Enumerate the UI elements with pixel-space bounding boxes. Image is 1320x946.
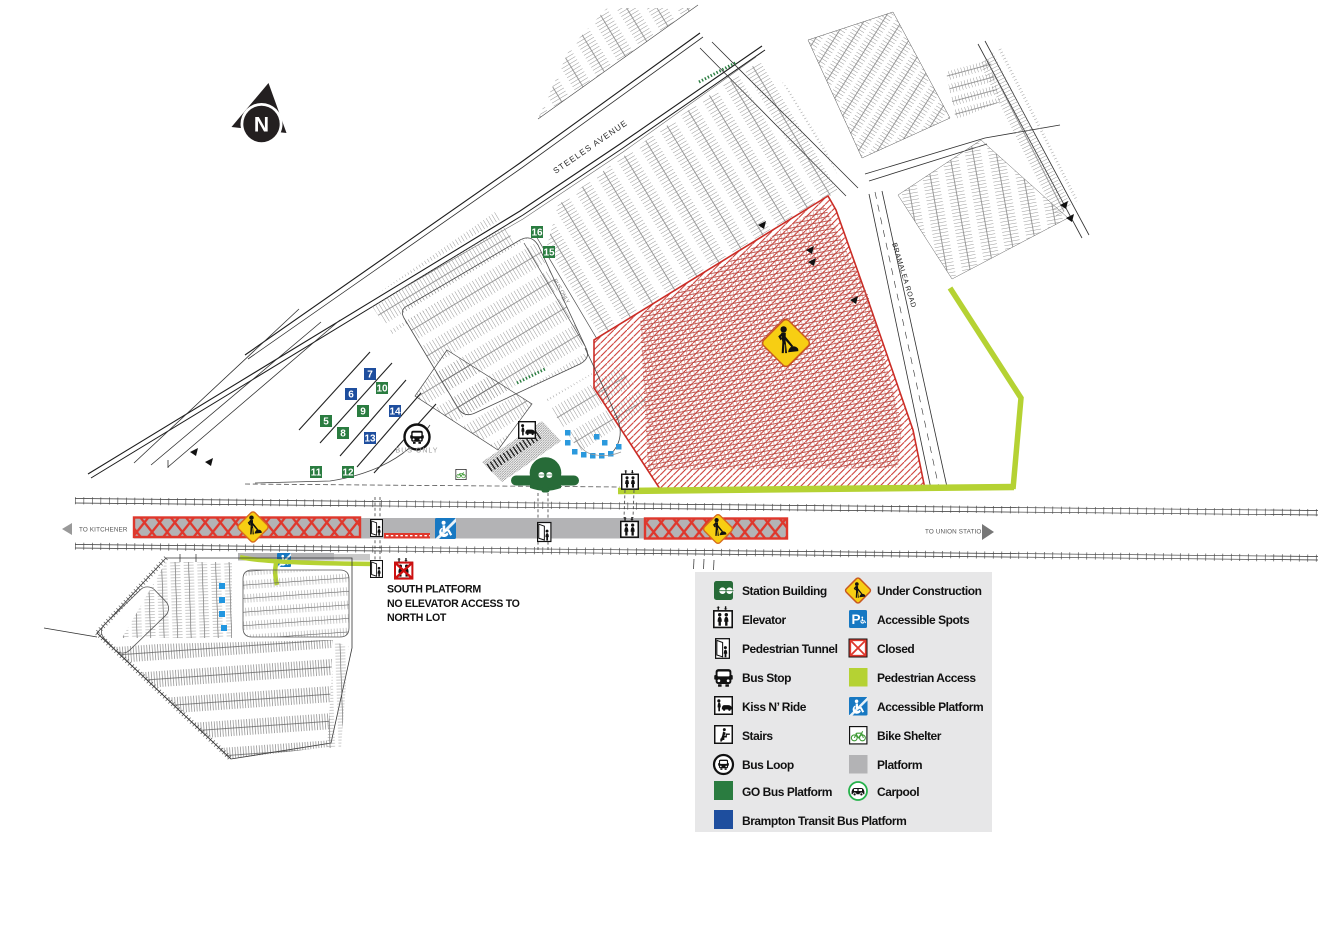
- svg-text:7: 7: [367, 370, 373, 381]
- svg-text:Closed: Closed: [877, 642, 914, 656]
- svg-text:SOUTH PLATFORM: SOUTH PLATFORM: [387, 584, 481, 596]
- svg-text:13: 13: [364, 434, 376, 445]
- svg-text:Pedestrian Tunnel: Pedestrian Tunnel: [742, 642, 838, 656]
- svg-text:15: 15: [543, 248, 555, 259]
- svg-text:TO KITCHENER: TO KITCHENER: [79, 527, 128, 534]
- svg-text:Carpool: Carpool: [877, 785, 919, 799]
- svg-text:9: 9: [360, 407, 366, 418]
- svg-text:NO ELEVATOR ACCESS TO: NO ELEVATOR ACCESS TO: [387, 598, 520, 610]
- svg-text:14: 14: [389, 407, 401, 418]
- svg-text:10: 10: [376, 384, 388, 395]
- svg-text:Bus Loop: Bus Loop: [742, 758, 794, 772]
- svg-text:GO Bus Platform: GO Bus Platform: [742, 785, 832, 799]
- svg-text:Bus Stop: Bus Stop: [742, 671, 791, 685]
- svg-text:Accessible Spots: Accessible Spots: [877, 613, 970, 627]
- svg-text:BUS ONLY: BUS ONLY: [396, 448, 439, 455]
- svg-text:Pedestrian Access: Pedestrian Access: [877, 671, 976, 685]
- svg-text:Brampton Transit Bus Platform: Brampton Transit Bus Platform: [742, 814, 906, 828]
- svg-text:Accessible Platform: Accessible Platform: [877, 700, 983, 714]
- svg-text:16: 16: [531, 228, 543, 239]
- svg-text:11: 11: [311, 468, 322, 479]
- svg-text:8: 8: [340, 429, 346, 440]
- svg-text:6: 6: [348, 390, 354, 401]
- svg-text:Under Construction: Under Construction: [877, 584, 982, 598]
- svg-text:Station Building: Station Building: [742, 584, 827, 598]
- svg-text:Platform: Platform: [877, 758, 922, 772]
- svg-text:12: 12: [342, 468, 354, 479]
- svg-text:Kiss N’ Ride: Kiss N’ Ride: [742, 700, 807, 714]
- svg-text:5: 5: [323, 417, 329, 428]
- svg-text:Bike Shelter: Bike Shelter: [877, 729, 942, 743]
- svg-text:NORTH LOT: NORTH LOT: [387, 612, 447, 624]
- svg-text:Stairs: Stairs: [742, 729, 773, 743]
- svg-text:TO UNION STATION: TO UNION STATION: [925, 529, 986, 536]
- svg-text:Elevator: Elevator: [742, 613, 787, 627]
- svg-text:N: N: [254, 114, 269, 137]
- svg-text:P: P: [852, 612, 861, 627]
